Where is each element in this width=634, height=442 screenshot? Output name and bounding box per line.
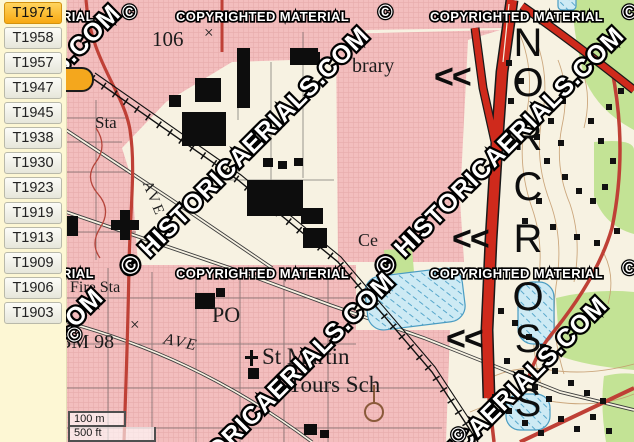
svg-text:O: O [512,275,543,319]
label-elevation-mark: × [204,23,214,42]
year-button-t1945[interactable]: T1945 [4,102,62,124]
svg-text:C: C [514,165,543,209]
scale-metric: 100 m [68,411,126,427]
svg-text:<<: << [446,320,483,358]
copyright-banner-3: COPYRIGHTED MATERIAL [176,266,349,281]
year-button-t1903[interactable]: T1903 [4,302,62,324]
copyright-banner-2: COPYRIGHTED MATERIAL [430,9,603,24]
historic-aerials-viewer: T1971 T1958 T1957 T1947 T1945 T1938 T193… [0,0,634,442]
label-elevation: 106 [152,27,184,51]
svg-text:R: R [514,217,543,261]
copyright-banner-4: COPYRIGHTED MATERIAL [430,266,603,281]
label-benchmark-mark: × [130,315,140,334]
label-station: Sta [95,113,117,132]
year-button-t1919[interactable]: T1919 [4,202,62,224]
copyright-symbol-3: © [622,2,634,25]
year-button-t1971[interactable]: T1971 [4,2,62,24]
sidebar-collapse-handle[interactable] [66,67,94,92]
year-button-t1909[interactable]: T1909 [4,252,62,274]
copyright-banner-1: COPYRIGHTED MATERIAL [176,9,349,24]
svg-text:<<: << [452,220,489,258]
year-button-t1957[interactable]: T1957 [4,52,62,74]
copyright-symbol-5: © [622,258,634,281]
map-viewport[interactable]: 106 × brary Sta AVE Fire Sta Ce PO BM 98… [66,0,634,442]
label-cemetery: Ce [358,230,378,250]
year-button-t1913[interactable]: T1913 [4,227,62,249]
year-button-t1958[interactable]: T1958 [4,27,62,49]
scale-imperial: 500 ft [68,427,156,442]
year-sidebar: T1971 T1958 T1957 T1947 T1945 T1938 T193… [0,0,67,442]
year-button-t1938[interactable]: T1938 [4,127,62,149]
year-button-t1923[interactable]: T1923 [4,177,62,199]
year-button-t1906[interactable]: T1906 [4,277,62,299]
svg-text:N: N [514,21,543,65]
copyright-symbol-2: © [378,2,393,25]
label-post-office: PO [212,302,240,327]
scale-control: 100 m 500 ft [68,411,156,442]
year-button-t1947[interactable]: T1947 [4,77,62,99]
svg-text:<<: << [434,58,471,96]
year-button-t1930[interactable]: T1930 [4,152,62,174]
copyright-banner-partial-2: RIAL [66,266,94,281]
